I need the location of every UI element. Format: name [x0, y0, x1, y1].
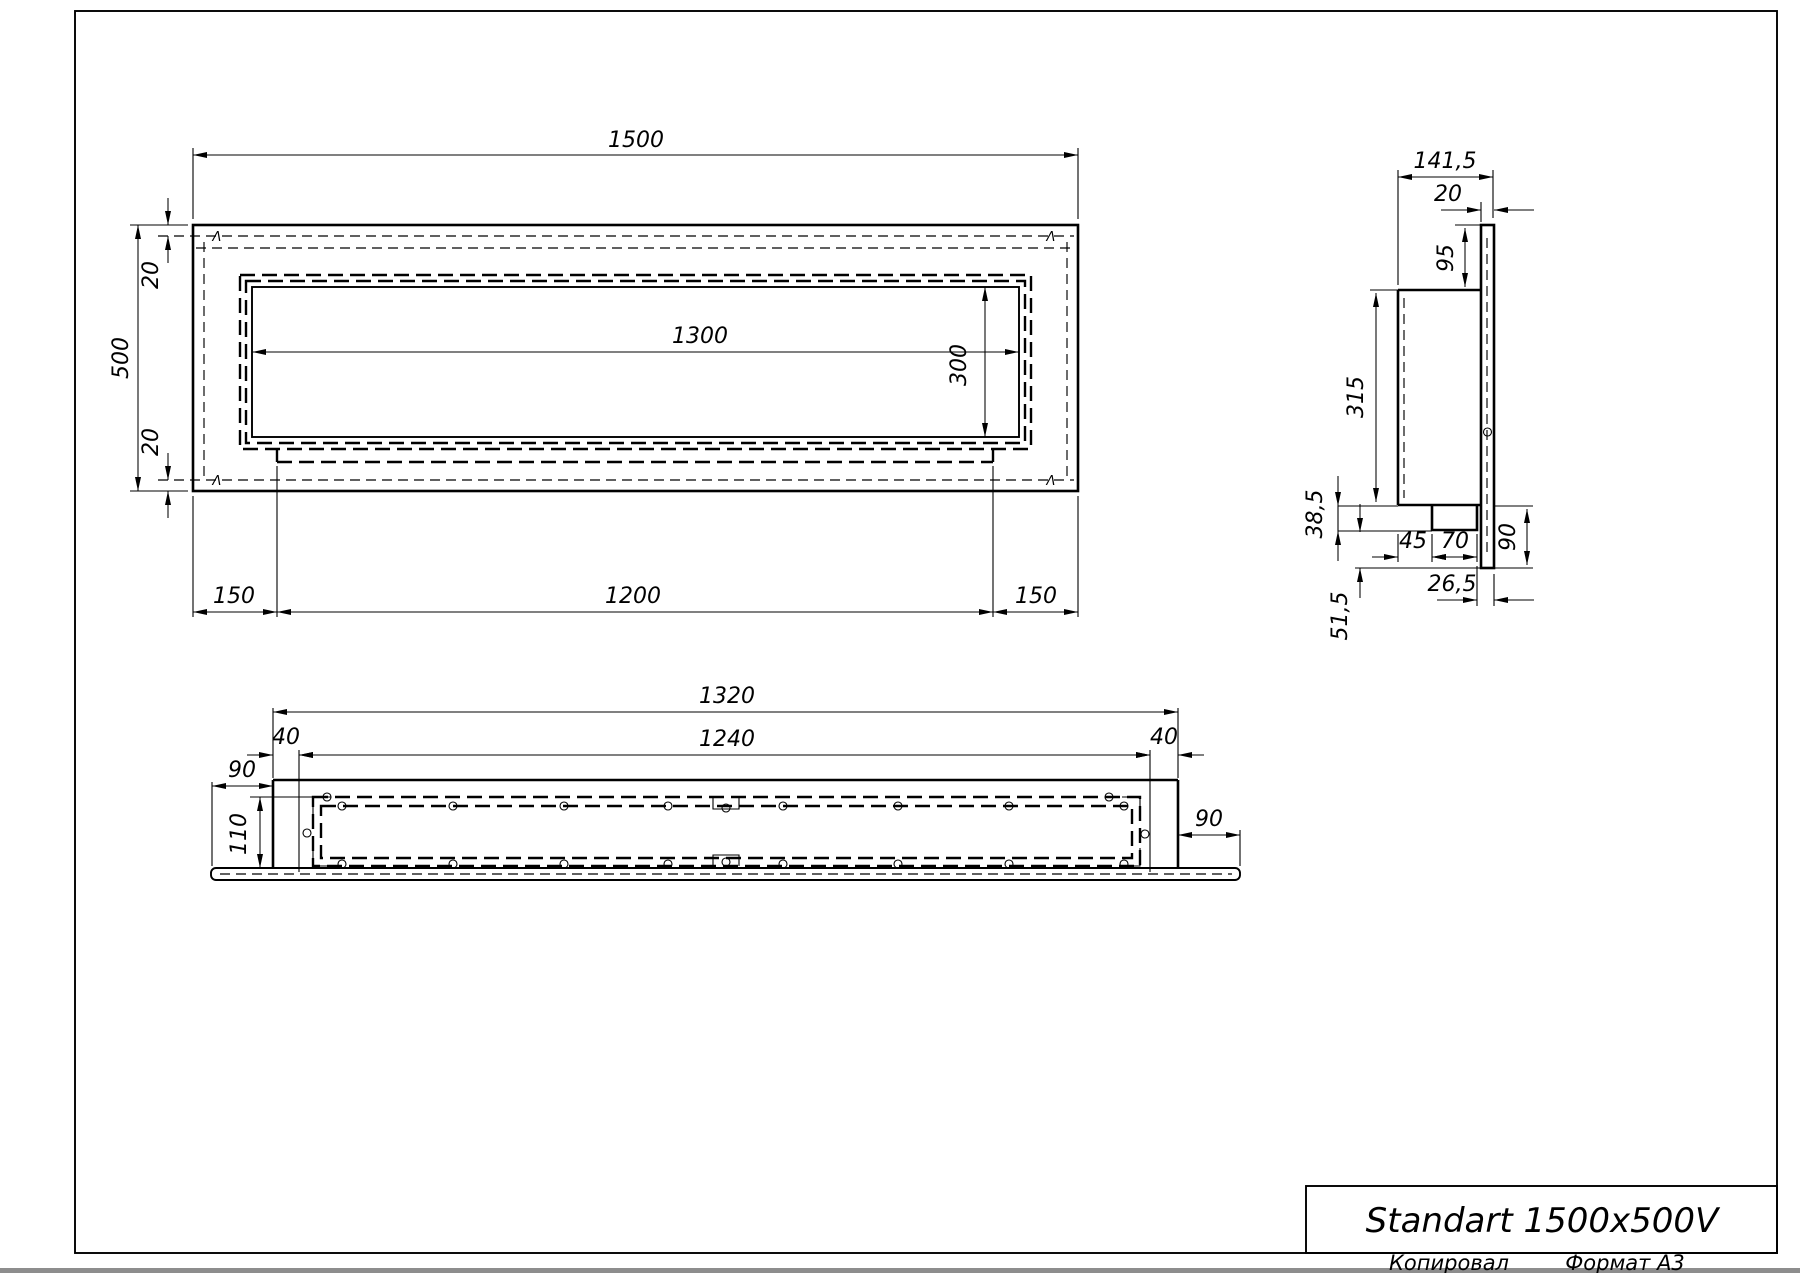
drawing-canvas: Λ Λ Λ Λ 1500 500 20 20 1300 300	[0, 0, 1800, 1273]
copied-label: Копировал	[1389, 1251, 1509, 1273]
sheet-frame	[0, 11, 1800, 1273]
front-opening	[252, 287, 1019, 437]
fastener-marker: Λ	[1046, 230, 1056, 245]
dim-bottom-end-left: 40	[272, 725, 300, 750]
dim-front-opening-height: 300	[947, 344, 972, 386]
fastener-marker: Λ	[1046, 474, 1056, 489]
front-outline	[193, 225, 1078, 491]
dim-bottom-flange-right: 90	[1195, 807, 1223, 832]
bottom-view: 1320 1240 40 40 90 90 110	[211, 684, 1240, 880]
dim-front-bottom-inset: 20	[139, 428, 164, 456]
dim-side-tray-to-bottom: 51,5	[1328, 592, 1353, 641]
front-view: Λ Λ Λ Λ 1500 500 20 20 1300 300	[109, 128, 1078, 617]
side-view: 141,5 20 95 315 38,5 51,5 45 70	[1303, 149, 1534, 640]
front-opening-hidden-inner	[246, 281, 1025, 443]
dim-front-total-height: 500	[109, 337, 134, 379]
drawing-title: Standart 1500x500V	[1366, 1201, 1721, 1241]
dim-front-top-inset: 20	[139, 261, 164, 289]
dim-side-top-to-box: 95	[1434, 244, 1459, 272]
format-label: Формат А3	[1565, 1251, 1685, 1273]
fastener-marker: Λ	[212, 474, 222, 489]
drawing-sheet: Λ Λ Λ Λ 1500 500 20 20 1300 300	[0, 0, 1800, 1273]
dim-front-bottom-width: 1200	[605, 584, 661, 609]
dim-front-opening-width: 1300	[672, 324, 728, 349]
dim-side-box-to-tray: 38,5	[1303, 490, 1328, 539]
dim-bottom-outer-width: 1320	[699, 684, 755, 709]
dim-bottom-inner-width: 1240	[699, 727, 755, 752]
dim-side-rear-offset: 26,5	[1428, 572, 1477, 597]
fastener-marker: Λ	[212, 230, 222, 245]
dim-bottom-flange-left: 90	[228, 758, 256, 783]
dim-bottom-end-right: 40	[1150, 725, 1178, 750]
bottom-channel-hidden-outer	[313, 797, 1140, 866]
title-block: Standart 1500x500V	[1306, 1186, 1777, 1253]
dim-bottom-depth: 110	[227, 813, 252, 855]
dim-side-depth: 141,5	[1414, 149, 1477, 174]
dim-front-right-offset: 150	[1015, 584, 1057, 609]
side-hole-right	[1141, 830, 1149, 838]
bottom-channel-hidden-inner	[321, 806, 1132, 858]
dim-side-block-offset: 45	[1399, 529, 1427, 554]
dim-side-box-height: 315	[1344, 376, 1369, 418]
dim-side-panel-below: 90	[1496, 523, 1521, 551]
dim-side-panel-thickness: 20	[1434, 182, 1462, 207]
dim-side-block-width: 70	[1441, 529, 1469, 554]
side-burner-block	[1432, 506, 1477, 530]
dim-front-total-width: 1500	[608, 128, 664, 153]
side-hole-left	[303, 829, 311, 837]
front-opening-hidden-outer	[240, 275, 1031, 449]
dim-front-left-offset: 150	[213, 584, 255, 609]
